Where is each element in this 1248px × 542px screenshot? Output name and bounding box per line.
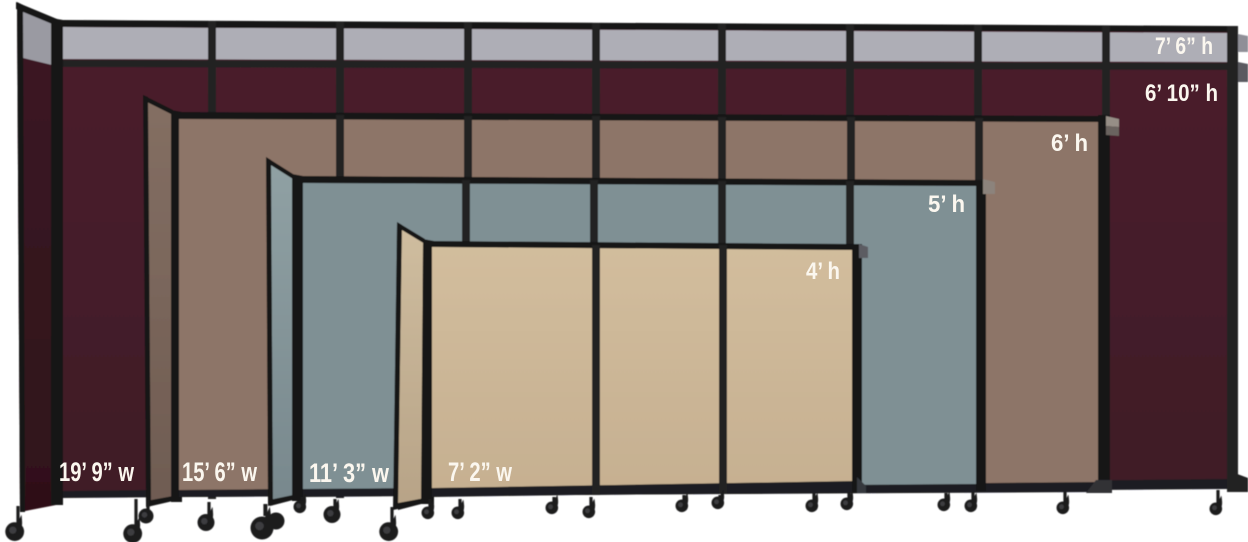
svg-text:11’ 3” w: 11’ 3” w [309,458,390,488]
svg-text:7’ 2” w: 7’ 2” w [448,457,513,487]
svg-text:5’ h: 5’ h [928,191,965,218]
svg-text:6’ h: 6’ h [1051,130,1088,157]
svg-text:7’ 6” h: 7’ 6” h [1155,33,1213,60]
svg-text:4’ h: 4’ h [806,258,840,285]
svg-text:6’ 10” h: 6’ 10” h [1145,80,1218,107]
svg-text:19’ 9” w: 19’ 9” w [59,457,135,487]
svg-text:15’ 6” w: 15’ 6” w [182,457,258,487]
